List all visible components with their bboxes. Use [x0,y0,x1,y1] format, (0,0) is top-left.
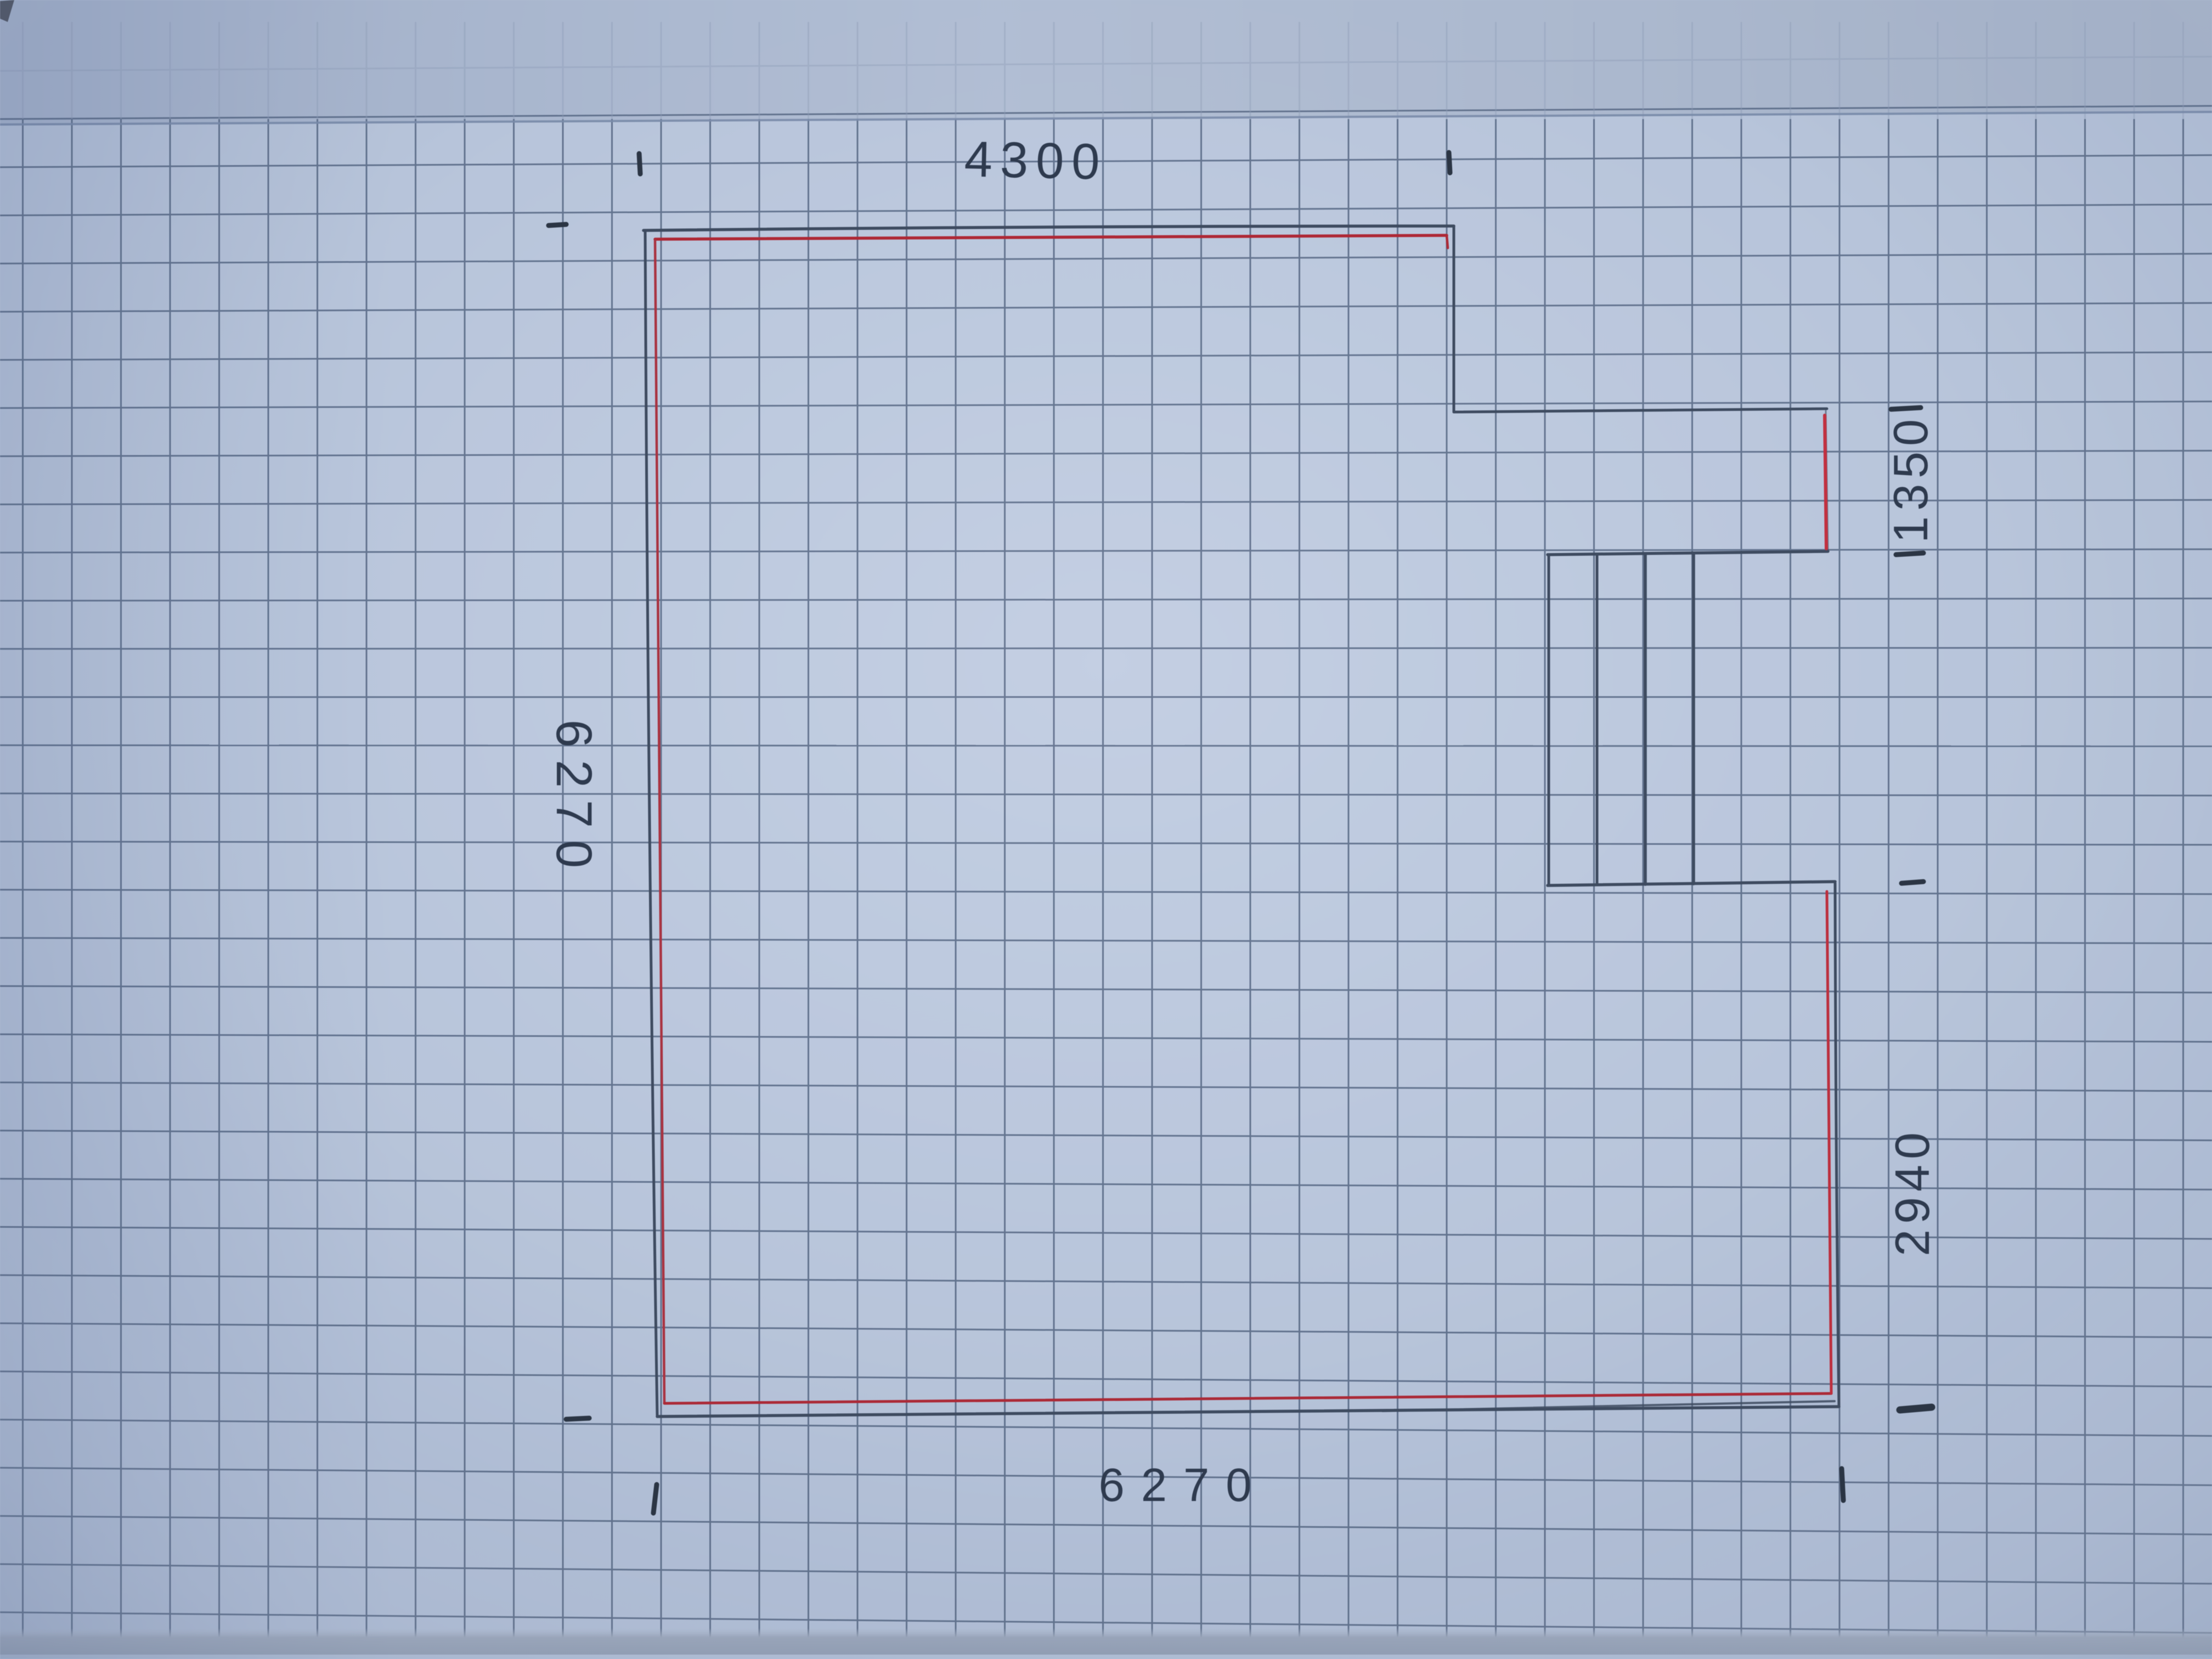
svg-text:6270: 6270 [546,720,602,881]
svg-text:6270: 6270 [1098,1459,1268,1511]
svg-text:4300: 4300 [964,131,1108,190]
svg-text:1350: 1350 [1883,414,1938,543]
svg-text:2940: 2940 [1885,1127,1939,1256]
